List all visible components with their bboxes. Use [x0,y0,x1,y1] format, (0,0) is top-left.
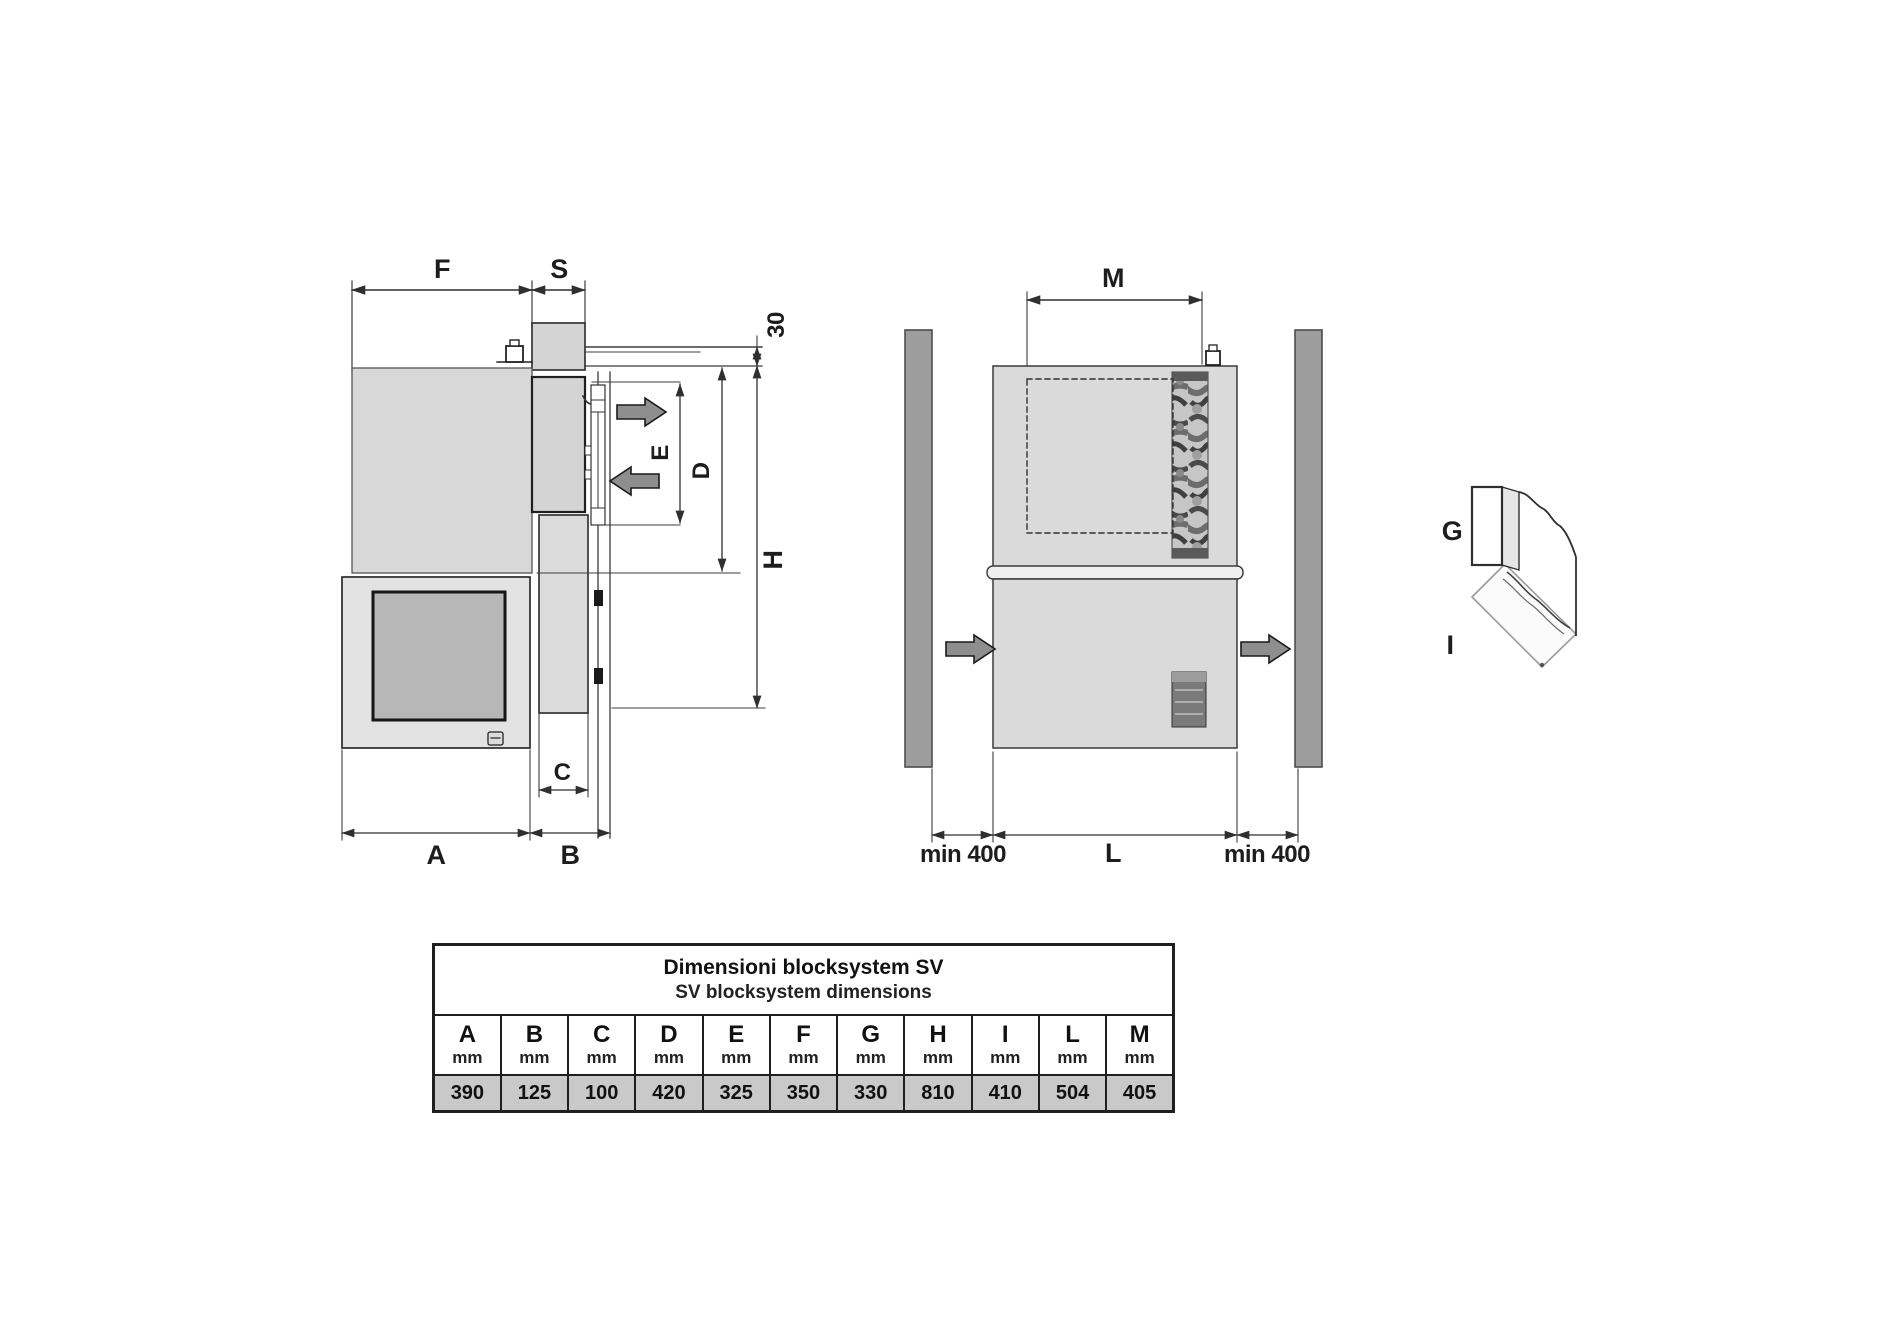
dim-label-c: C [554,759,571,786]
dim-label-b: B [561,840,580,870]
dim-label-m: M [1102,263,1124,293]
table-header-d: D mm [635,1015,702,1075]
corner-detail: G I [1442,487,1576,667]
rating-plate [1172,672,1206,727]
airflow-out-arrow [617,398,666,426]
airflow-in-arrow [610,467,659,495]
roof-lines [585,347,762,366]
airflow-right-arrow [1241,635,1290,663]
col-unit: mm [838,1049,903,1068]
value-b: 125 [501,1075,568,1112]
panel-front-face [1472,487,1502,565]
panel-torn-top-edge [1519,492,1576,557]
col-unit: mm [636,1049,701,1068]
dim-label-a: A [427,840,446,870]
l-extension-lines [932,752,1298,842]
panel-angled-board [1472,564,1576,667]
col-unit: mm [704,1049,769,1068]
dim-label-l: L [1105,838,1121,868]
col-letter: B [502,1022,567,1048]
value-d: 420 [635,1075,702,1112]
table-header-c: C mm [568,1015,635,1075]
front-view: M [905,263,1322,868]
value-e: 325 [703,1075,770,1112]
airflow-left-arrow [946,635,995,663]
dim-label-min-right: min 400 [1224,841,1310,868]
table-value-row: 390 125 100 420 325 350 330 810 410 504 … [434,1075,1174,1112]
wall-fixing-block-top [594,590,603,606]
value-f: 350 [770,1075,837,1112]
col-unit: mm [435,1049,500,1068]
coil-bottom-band [1172,548,1208,558]
table-header-h: H mm [904,1015,971,1075]
dim-label-h: H [758,551,788,570]
wall-fixing-block-bottom [594,668,603,684]
right-wall-bar [1295,330,1322,767]
through-wall-unit [532,377,585,512]
air-grille [583,385,605,525]
table-header-a: A mm [434,1015,501,1075]
col-unit: mm [905,1049,970,1068]
drain-plug-icon [488,732,503,745]
table-header-b: B mm [501,1015,568,1075]
value-i: 410 [972,1075,1039,1112]
col-unit: mm [569,1049,634,1068]
left-wall-bar [905,330,932,767]
col-letter: E [704,1022,769,1048]
col-letter: D [636,1022,701,1048]
col-letter: L [1040,1022,1105,1048]
value-l: 504 [1039,1075,1106,1112]
table-title-row: Dimensioni blocksystem SV SV blocksystem… [434,945,1174,1016]
value-h: 810 [904,1075,971,1112]
col-letter: I [973,1022,1038,1048]
screenshot-root: F S [0,0,1890,1336]
fan-panel [373,592,505,720]
ab-extension-lines [342,750,530,840]
col-letter: F [771,1022,836,1048]
table-title-cell: Dimensioni blocksystem SV SV blocksystem… [434,945,1174,1016]
mounting-bracket-icon [497,340,532,362]
dim-label-i: I [1446,630,1453,660]
table-title-line2: SV blocksystem dimensions [435,982,1172,1005]
col-letter: G [838,1022,903,1048]
dim-label-min-left: min 400 [920,841,1006,868]
value-m: 405 [1106,1075,1173,1112]
value-g: 330 [837,1075,904,1112]
dim-label-s: S [550,254,568,284]
panel-side-face [1502,487,1519,570]
value-a: 390 [434,1075,501,1112]
col-unit: mm [1040,1049,1105,1068]
col-letter: M [1107,1022,1172,1048]
dimension-drawing-svg: F S [0,0,1890,1336]
table-header-m: M mm [1106,1015,1173,1075]
table-header-f: F mm [770,1015,837,1075]
dim-label-30: 30 [763,312,790,338]
col-unit: mm [502,1049,567,1068]
col-unit: mm [771,1049,836,1068]
col-unit: mm [973,1049,1038,1068]
top-bracket-icon [1206,345,1220,365]
table-header-row: A mm B mm C mm D mm E mm F mm [434,1015,1174,1075]
dim-label-e: E [647,445,674,461]
col-letter: A [435,1022,500,1048]
evaporator-box [352,368,532,573]
dimensions-table-grid: Dimensioni blocksystem SV SV blocksystem… [432,943,1175,1113]
dim-label-f: F [434,254,450,284]
dim-label-d: D [688,462,715,479]
condenser-coil [1172,372,1208,558]
lower-unit-body [539,515,588,713]
dim-label-g: G [1442,516,1463,546]
wall-top-duct [532,323,585,370]
table-header-e: E mm [703,1015,770,1075]
board-tip-dot [1540,663,1544,667]
col-unit: mm [1107,1049,1172,1068]
col-letter: H [905,1022,970,1048]
table-header-l: L mm [1039,1015,1106,1075]
side-view: F S [342,254,790,870]
divider-ledge [987,566,1243,579]
coil-top-band [1172,372,1208,381]
col-letter: C [569,1022,634,1048]
table-header-i: I mm [972,1015,1039,1075]
dimensions-table: Dimensioni blocksystem SV SV blocksystem… [432,943,1175,1113]
table-title-line1: Dimensioni blocksystem SV [435,955,1172,981]
value-c: 100 [568,1075,635,1112]
table-header-g: G mm [837,1015,904,1075]
